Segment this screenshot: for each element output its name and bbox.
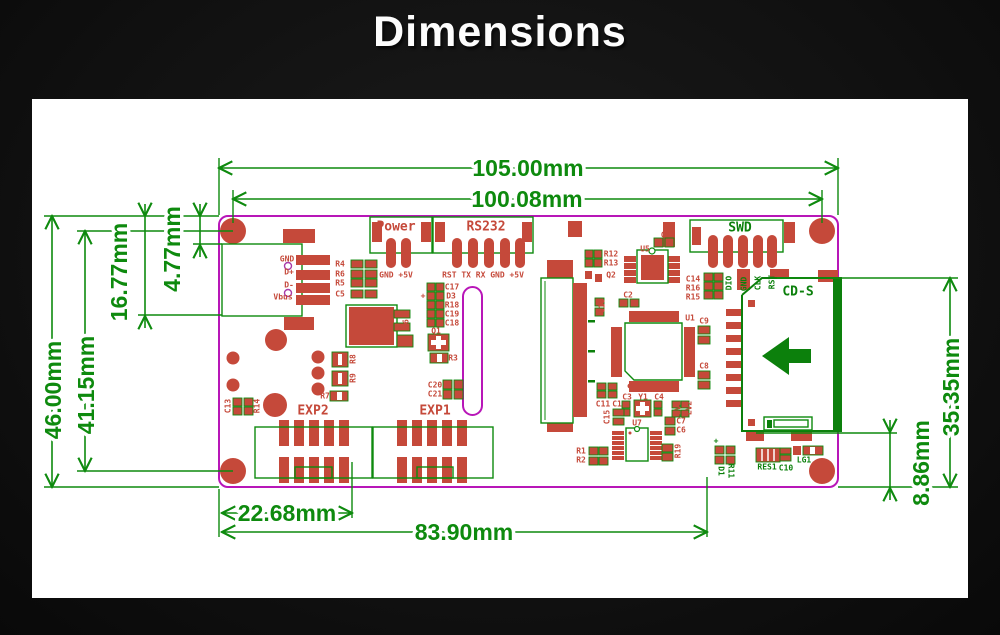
sd-edge-bar <box>833 277 842 432</box>
dimension-label: 83.90mm <box>415 519 513 545</box>
board-label: EXP1 <box>419 404 450 419</box>
board-label: C6 <box>676 426 686 435</box>
board-label: EXP2 <box>297 404 328 419</box>
board-label: R7 <box>320 392 330 401</box>
board-label: C16 <box>598 299 607 314</box>
dimension-label: 105.00mm <box>472 155 583 181</box>
board-label: Q1 <box>431 327 441 336</box>
board-label: R12 <box>604 250 619 259</box>
board-label: C18 <box>445 319 460 328</box>
board-label: D- <box>284 281 294 290</box>
board-label: RS232 <box>466 220 505 235</box>
board-label: + <box>421 292 426 301</box>
board-label: R14 <box>253 399 262 414</box>
dimension-label: 22.68mm <box>238 500 336 526</box>
board-label: RST <box>768 275 777 290</box>
board-label: D1 <box>717 466 726 476</box>
board-label: R2 <box>576 456 586 465</box>
board-label: U1 <box>685 314 695 323</box>
dimension-label: 46.00mm <box>40 341 66 439</box>
board-label: C1 <box>612 400 622 409</box>
dimension-label: 35.35mm <box>938 338 964 436</box>
board-label: R15 <box>686 293 701 302</box>
q1-r3 <box>428 334 449 363</box>
pcb-dimensions-diagram: PowerRS232SWDEXP2EXP1CD-SGND +5VRST TX R… <box>0 0 1000 635</box>
board-label: 1 <box>575 407 584 412</box>
dimension-label: 41.15mm <box>73 336 99 434</box>
board-label: C17 <box>445 283 460 292</box>
board-label: C3 <box>622 393 632 402</box>
dimension-label: 4.77mm <box>159 206 185 292</box>
board-label: C8 <box>699 362 709 371</box>
board-label: LG1 <box>797 456 812 465</box>
board-label: 40 <box>575 284 584 294</box>
board-label: R4 <box>335 260 345 269</box>
pad <box>568 221 582 237</box>
board-label: Q2 <box>606 271 616 280</box>
r8-r9-r7 <box>330 352 348 401</box>
dimension-label: 8.86mm <box>908 420 934 506</box>
board-label: C5 <box>335 290 345 299</box>
board-label: SWD <box>728 221 752 236</box>
board-label: RES1 <box>757 463 776 472</box>
board-label: R13 <box>604 259 619 268</box>
board-slot-cutout <box>463 287 482 415</box>
board-label: C12 <box>661 231 676 240</box>
board-label: C10 <box>779 464 794 473</box>
dimension-label: 16.77mm <box>106 223 132 321</box>
board-label: R8 <box>349 354 358 364</box>
board-label: CD-S <box>782 285 813 300</box>
board-label: GND <box>280 255 295 264</box>
board-label: C15 <box>603 410 612 425</box>
board-label: C2 <box>623 291 633 300</box>
fpc-connector <box>541 260 595 432</box>
board-label: C13 <box>224 399 233 414</box>
board-label: R9 <box>349 373 358 383</box>
board-label: C9 <box>699 317 709 326</box>
board-label: Vbus <box>273 293 292 302</box>
board-label: D3 <box>446 292 456 301</box>
board-label: RST TX RX GND +5V <box>442 271 524 280</box>
board-label: C11 <box>596 400 611 409</box>
board-label: R19 <box>674 444 683 459</box>
dimension-label: 100.08mm <box>471 186 582 212</box>
board-label: DIO <box>725 276 734 291</box>
board-label: LV2 <box>685 401 694 416</box>
board-label: U6 <box>402 319 411 329</box>
board-label: LV1 <box>674 401 683 416</box>
board-label: R18 <box>445 301 460 310</box>
board-label: C20 <box>428 381 443 390</box>
board-label: C14 <box>686 275 701 284</box>
board-label: Y1 <box>638 393 648 402</box>
board-label: Power <box>376 220 415 235</box>
board-label: U5 <box>640 245 650 254</box>
board-label: R5 <box>335 279 345 288</box>
board-label: R3 <box>448 354 458 363</box>
board-label: R16 <box>686 284 701 293</box>
board-label: C21 <box>428 390 443 399</box>
board-label: U7 <box>632 419 642 428</box>
board-label: C19 <box>445 310 460 319</box>
board-label: D+ <box>284 268 294 277</box>
board-label: CLK <box>754 276 763 291</box>
board-label: GND <box>740 277 749 292</box>
board-label: + <box>714 437 719 446</box>
board-label: C4 <box>654 393 664 402</box>
board-label: GND +5V <box>379 271 413 280</box>
board-label: R1 <box>576 447 586 456</box>
board-label: C7 <box>676 417 686 426</box>
board-label: R6 <box>335 270 345 279</box>
board-label: R11 <box>727 464 736 479</box>
